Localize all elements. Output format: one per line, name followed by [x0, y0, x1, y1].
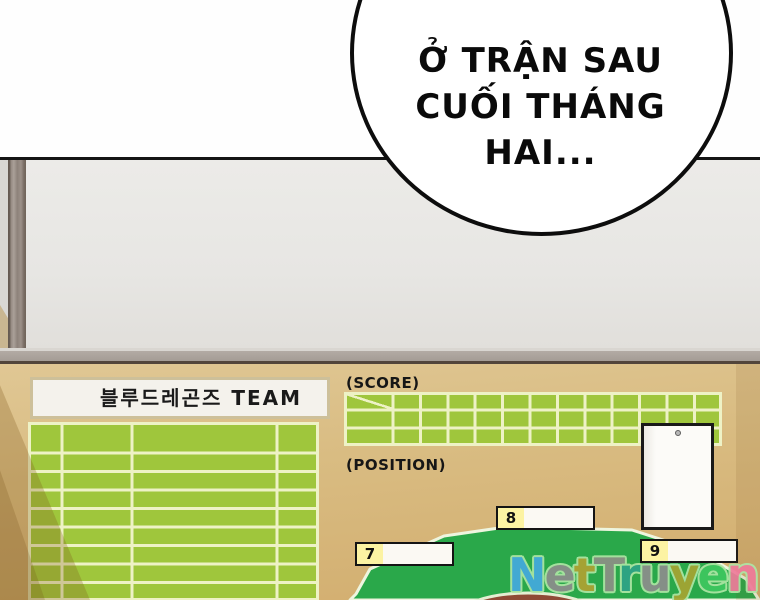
plate-number: 8 [506, 509, 516, 527]
plate-number-chip: 7 [357, 544, 383, 564]
speech-line: CUỐI THÁNG [358, 84, 723, 130]
team-sign-text: 블루드레곤즈 TEAM [33, 380, 327, 416]
watermark-letter: t [574, 548, 594, 600]
wall-sill-shadow-line [0, 361, 760, 364]
plate-number-chip: 8 [498, 508, 524, 528]
speech-bubble-text: Ở TRẬN SAU CUỐI THÁNG HAI... [358, 38, 723, 176]
watermark-letter: y [669, 548, 697, 600]
position-plate-8: 8 [496, 506, 595, 530]
watermark-letter: T [594, 548, 618, 600]
speech-line: Ở TRẬN SAU [358, 38, 723, 84]
watermark-letter: n [727, 548, 758, 600]
wall-sill [0, 351, 760, 361]
watermark-letter: e [697, 548, 726, 600]
score-label: (SCORE) [346, 374, 420, 392]
watermark-letter: N [508, 548, 545, 600]
position-label: (POSITION) [346, 456, 446, 474]
plate-number: 7 [365, 545, 375, 563]
watermark: NetTruyen [508, 548, 757, 600]
speech-line: HAI... [358, 130, 723, 176]
position-plate-7: 7 [355, 542, 454, 566]
watermark-letter: r [618, 548, 639, 600]
watermark-letter: u [639, 548, 670, 600]
watermark-letter: e [545, 548, 574, 600]
team-sign: 블루드레곤즈 TEAM [30, 377, 330, 419]
comic-panel: 블루드레곤즈 TEAM (SCORE) (POSITION) 7 8 9 Net… [0, 0, 760, 600]
wall-pillar [8, 160, 26, 348]
clipboard [641, 423, 714, 530]
clipboard-pin-icon [675, 430, 681, 436]
